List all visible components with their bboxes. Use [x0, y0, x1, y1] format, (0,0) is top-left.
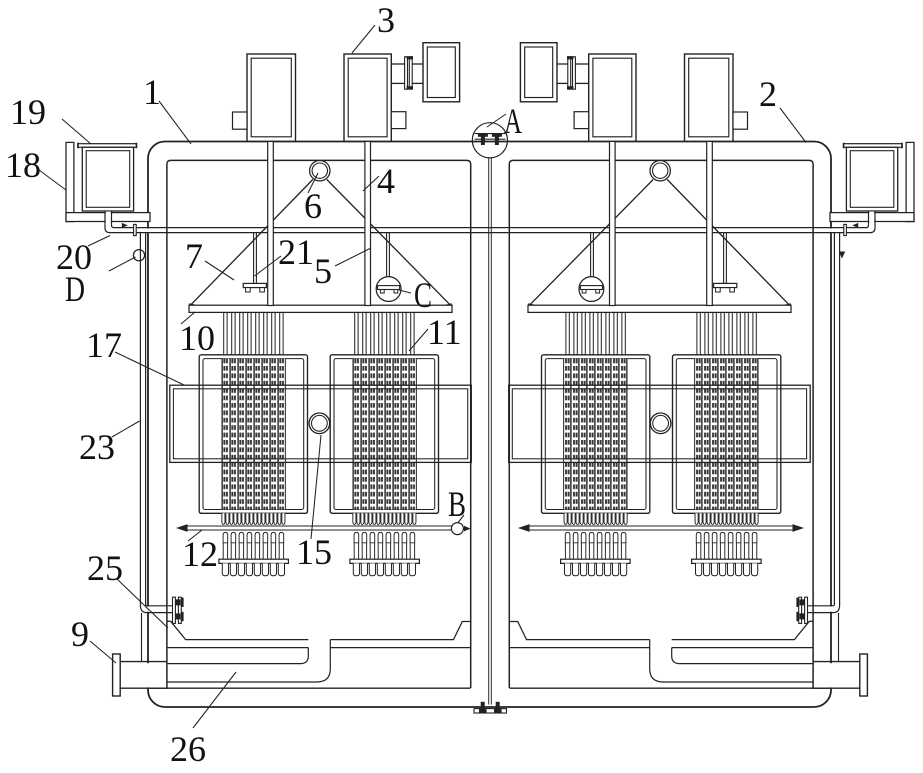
svg-text:C: C	[414, 275, 432, 315]
svg-text:6: 6	[304, 186, 322, 226]
svg-text:17: 17	[86, 325, 122, 365]
svg-text:19: 19	[10, 92, 46, 132]
svg-text:15: 15	[296, 532, 332, 572]
svg-text:21: 21	[278, 232, 314, 272]
svg-text:2: 2	[759, 74, 777, 114]
svg-text:25: 25	[87, 548, 123, 588]
svg-text:3: 3	[377, 0, 395, 40]
svg-text:23: 23	[79, 427, 115, 467]
svg-text:11: 11	[427, 312, 462, 352]
svg-text:7: 7	[185, 236, 203, 276]
svg-text:4: 4	[377, 161, 395, 201]
svg-text:12: 12	[182, 534, 218, 574]
svg-text:A: A	[504, 101, 522, 141]
svg-text:10: 10	[179, 318, 215, 358]
svg-text:D: D	[65, 269, 85, 309]
svg-text:18: 18	[5, 145, 41, 185]
svg-text:1: 1	[143, 72, 161, 112]
svg-text:9: 9	[71, 614, 89, 654]
svg-text:5: 5	[314, 251, 332, 291]
svg-text:26: 26	[170, 729, 206, 768]
svg-text:B: B	[448, 484, 466, 524]
